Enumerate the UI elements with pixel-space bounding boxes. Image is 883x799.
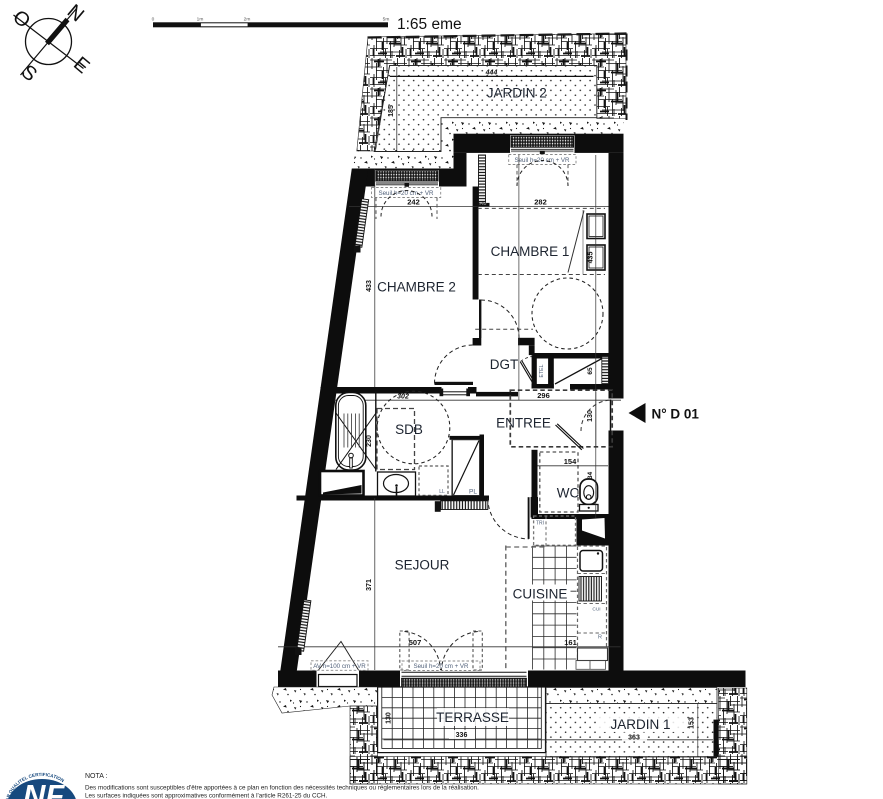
svg-text:NOTA :: NOTA : (85, 773, 107, 780)
svg-text:34: 34 (587, 472, 594, 480)
svg-text:N° D 01: N° D 01 (652, 407, 700, 422)
svg-text:SDB: SDB (395, 422, 423, 437)
svg-text:WC: WC (557, 486, 580, 501)
svg-text:Seuil h=20 cm + VR: Seuil h=20 cm + VR (413, 663, 469, 670)
svg-text:153: 153 (688, 717, 695, 729)
svg-text:282: 282 (534, 197, 547, 206)
svg-text:302: 302 (397, 393, 409, 400)
svg-text:336: 336 (456, 732, 468, 739)
svg-text:AV h=100 cm + VR: AV h=100 cm + VR (313, 663, 366, 670)
svg-text:PL: PL (469, 489, 477, 496)
svg-text:DGT: DGT (490, 357, 519, 372)
svg-text:154: 154 (564, 457, 577, 466)
svg-text:185: 185 (388, 105, 395, 117)
svg-text:Des modifications sont suscept: Des modifications sont susceptibles d'êt… (85, 785, 479, 792)
svg-text:JARDIN 2: JARDIN 2 (487, 86, 547, 101)
svg-text:230: 230 (366, 435, 373, 447)
svg-text:Seuil h=20 cm + VR: Seuil h=20 cm + VR (378, 190, 434, 197)
svg-text:161: 161 (564, 638, 577, 647)
svg-text:CUISINE: CUISINE (513, 587, 568, 602)
svg-text:2m: 2m (244, 17, 251, 23)
svg-text:CUI: CUI (592, 607, 600, 613)
svg-text:ETEL: ETEL (539, 364, 545, 377)
svg-text:TERRASSE: TERRASSE (436, 710, 509, 725)
svg-text:130: 130 (385, 712, 392, 724)
svg-text:363: 363 (628, 735, 640, 742)
svg-text:R: R (598, 635, 602, 641)
svg-text:JARDIN 1: JARDIN 1 (610, 717, 670, 732)
svg-text:371: 371 (366, 579, 373, 591)
svg-text:LL: LL (439, 489, 445, 495)
svg-text:CHAMBRE 2: CHAMBRE 2 (377, 280, 456, 295)
svg-text:5m: 5m (383, 17, 390, 23)
svg-text:CHAMBRE 1: CHAMBRE 1 (491, 244, 570, 259)
svg-text:242: 242 (407, 197, 420, 206)
svg-text:296: 296 (537, 391, 550, 400)
svg-text:1:65 eme: 1:65 eme (397, 16, 462, 33)
svg-text:507: 507 (409, 638, 422, 647)
svg-text:130: 130 (587, 410, 594, 422)
svg-text:Les surfaces indiquées sont ap: Les surfaces indiquées sont approximativ… (85, 793, 328, 799)
svg-text:444: 444 (485, 70, 498, 77)
svg-text:433: 433 (366, 280, 373, 292)
svg-text:TRI: TRI (536, 521, 544, 527)
svg-text:0: 0 (152, 17, 155, 23)
svg-text:PrD: PrD (480, 201, 487, 206)
svg-text:ENTREE: ENTREE (496, 416, 551, 431)
svg-text:1m: 1m (197, 17, 204, 23)
svg-text:SEJOUR: SEJOUR (395, 558, 450, 573)
svg-text:65: 65 (587, 367, 594, 375)
svg-text:435: 435 (588, 252, 595, 264)
